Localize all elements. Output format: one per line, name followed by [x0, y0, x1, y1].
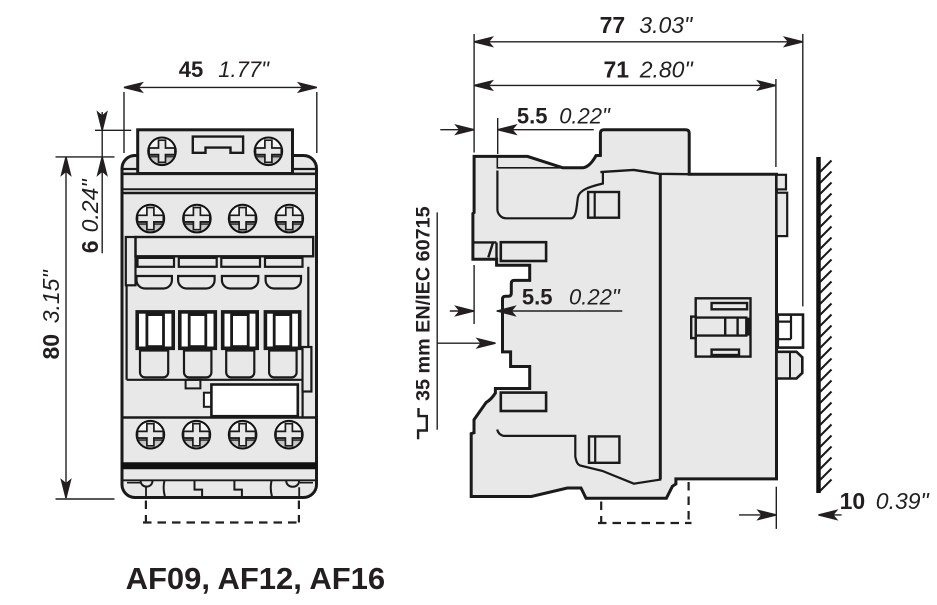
- svg-text:6: 6: [77, 240, 103, 253]
- svg-text:0.24": 0.24": [77, 178, 103, 233]
- svg-text:0.22": 0.22": [559, 103, 611, 128]
- svg-text:3.15": 3.15": [38, 269, 64, 324]
- svg-text:AF09, AF12, AF16: AF09, AF12, AF16: [126, 561, 386, 596]
- svg-text:35 mm EN/IEC 60715: 35 mm EN/IEC 60715: [413, 206, 435, 401]
- svg-text:5.5: 5.5: [517, 103, 548, 128]
- svg-text:45: 45: [179, 57, 203, 82]
- svg-text:10: 10: [840, 488, 866, 514]
- svg-text:2.80": 2.80": [639, 57, 695, 83]
- svg-text:5.5: 5.5: [522, 285, 553, 310]
- svg-text:77: 77: [600, 12, 626, 38]
- svg-text:3.03": 3.03": [639, 12, 694, 38]
- svg-text:80: 80: [38, 334, 64, 360]
- svg-text:1.77": 1.77": [218, 57, 270, 82]
- svg-text:0.22": 0.22": [569, 285, 621, 310]
- svg-text:0.39": 0.39": [876, 488, 931, 514]
- svg-text:71: 71: [604, 57, 630, 83]
